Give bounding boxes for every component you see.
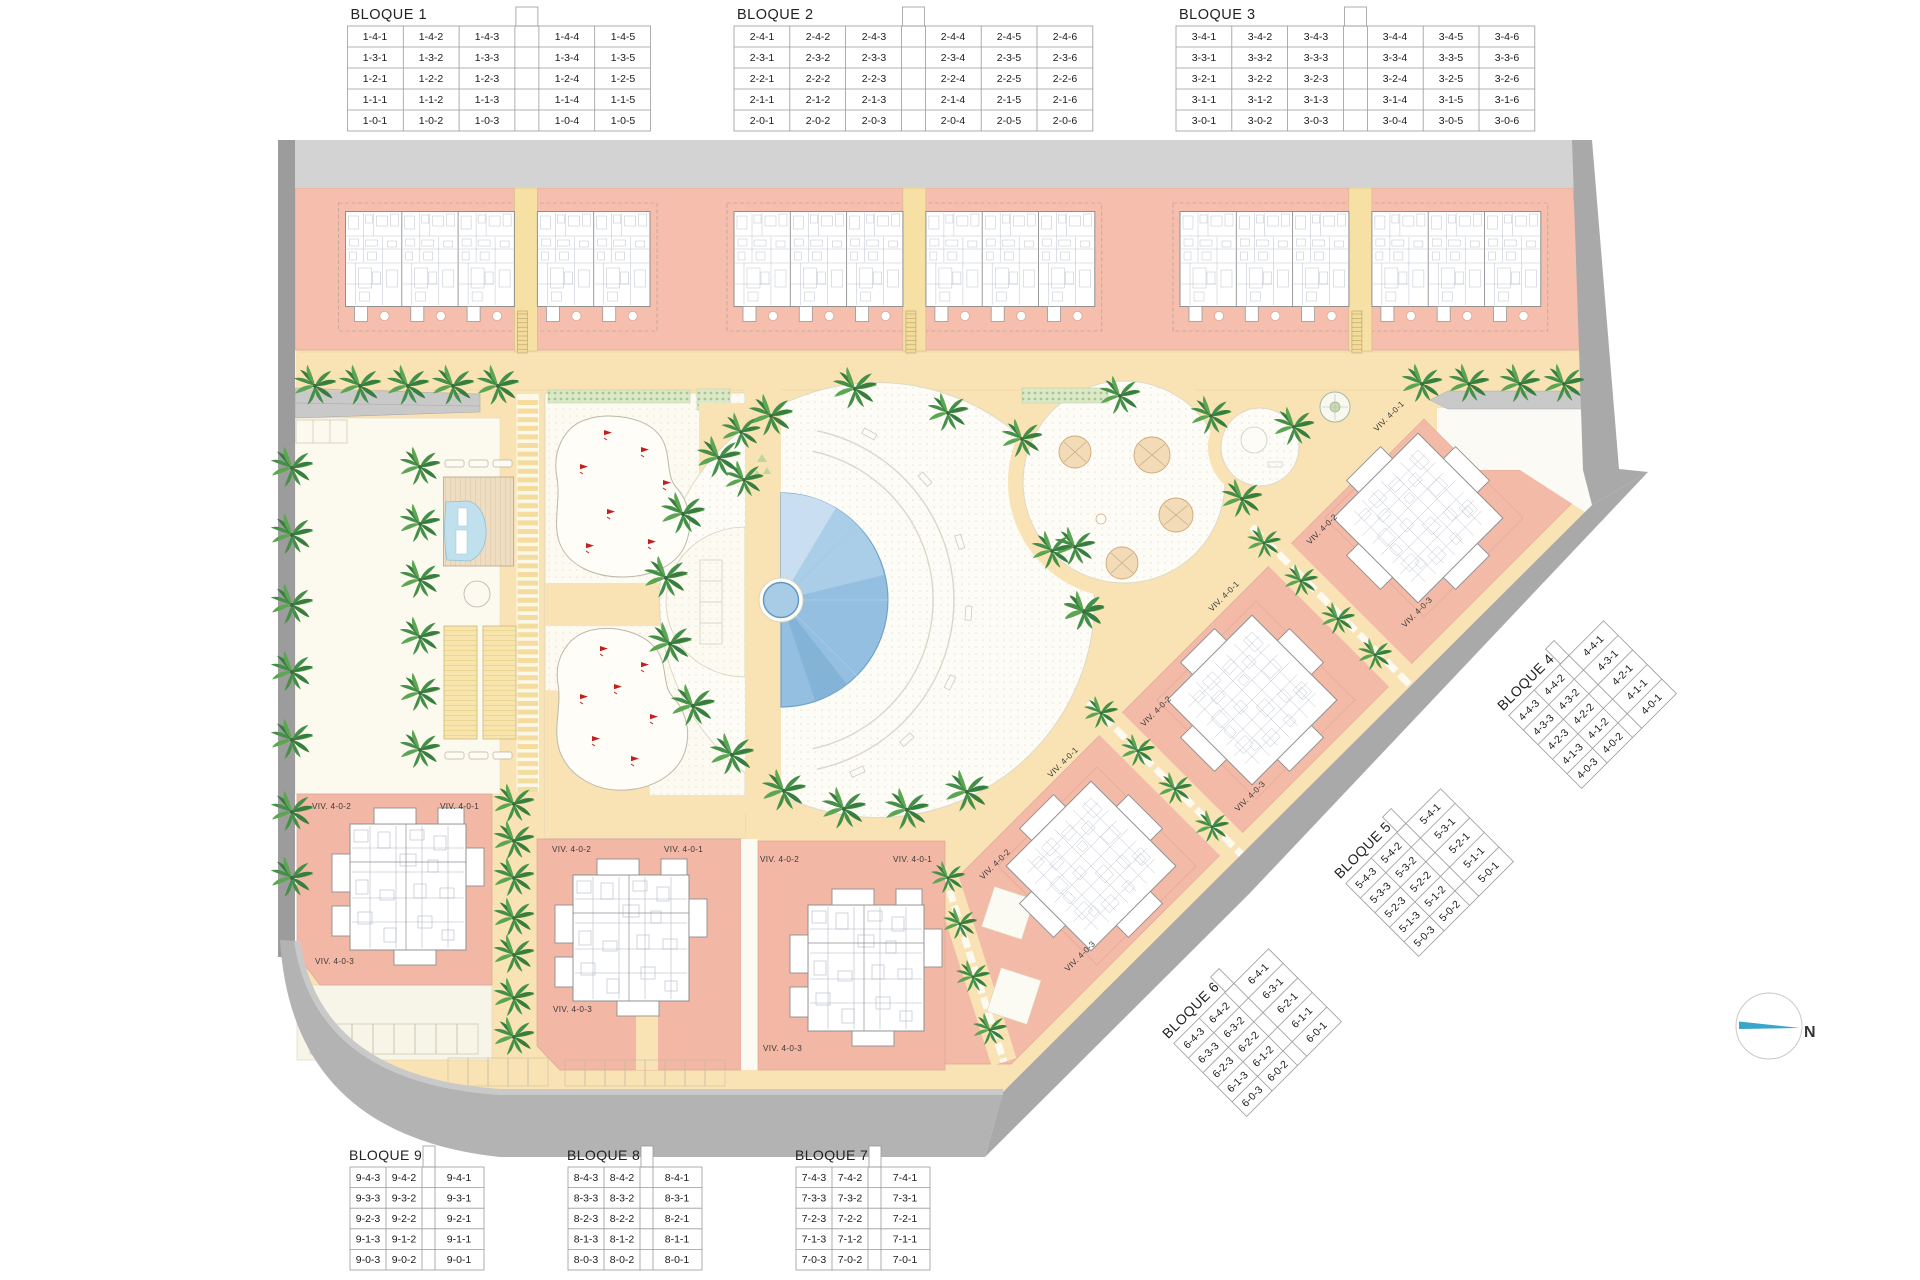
- svg-text:1-3-1: 1-3-1: [363, 52, 388, 64]
- svg-text:1-2-5: 1-2-5: [611, 73, 636, 85]
- svg-text:8-4-1: 8-4-1: [665, 1172, 690, 1184]
- svg-text:N: N: [1804, 1024, 1816, 1041]
- svg-text:9-4-2: 9-4-2: [392, 1172, 417, 1184]
- svg-text:7-4-3: 7-4-3: [802, 1172, 827, 1184]
- svg-text:VIV. 4-0-3: VIV. 4-0-3: [315, 957, 354, 966]
- svg-text:1-1-4: 1-1-4: [555, 94, 580, 106]
- svg-text:VIV. 4-0-1: VIV. 4-0-1: [440, 802, 479, 811]
- svg-text:9-1-1: 9-1-1: [447, 1234, 472, 1246]
- svg-text:3-3-1: 3-3-1: [1192, 52, 1217, 64]
- svg-text:9-3-2: 9-3-2: [392, 1192, 417, 1204]
- svg-text:VIV. 4-0-2: VIV. 4-0-2: [760, 855, 799, 864]
- svg-text:2-2-5: 2-2-5: [997, 73, 1022, 85]
- svg-text:7-0-2: 7-0-2: [838, 1254, 863, 1266]
- svg-text:3-3-3: 3-3-3: [1304, 52, 1329, 64]
- svg-text:2-1-3: 2-1-3: [862, 94, 887, 106]
- svg-text:VIV. 4-0-3: VIV. 4-0-3: [763, 1044, 802, 1053]
- svg-text:3-0-5: 3-0-5: [1439, 115, 1464, 127]
- svg-text:1-1-5: 1-1-5: [611, 94, 636, 106]
- svg-text:8-2-1: 8-2-1: [665, 1213, 690, 1225]
- svg-text:3-0-1: 3-0-1: [1192, 115, 1217, 127]
- svg-text:3-4-4: 3-4-4: [1383, 31, 1408, 43]
- svg-text:7-3-3: 7-3-3: [802, 1192, 827, 1204]
- svg-text:2-2-4: 2-2-4: [941, 73, 966, 85]
- svg-text:1-0-1: 1-0-1: [363, 115, 388, 127]
- svg-text:3-0-2: 3-0-2: [1248, 115, 1273, 127]
- svg-text:9-0-3: 9-0-3: [356, 1254, 381, 1266]
- svg-text:BLOQUE 2: BLOQUE 2: [737, 7, 814, 23]
- svg-text:1-3-2: 1-3-2: [419, 52, 444, 64]
- svg-text:8-1-1: 8-1-1: [665, 1234, 690, 1246]
- svg-text:3-2-1: 3-2-1: [1192, 73, 1217, 85]
- svg-text:1-4-1: 1-4-1: [363, 31, 388, 43]
- svg-text:1-3-4: 1-3-4: [555, 52, 580, 64]
- svg-text:1-1-3: 1-1-3: [475, 94, 500, 106]
- svg-text:8-3-1: 8-3-1: [665, 1192, 690, 1204]
- svg-text:3-1-3: 3-1-3: [1304, 94, 1329, 106]
- svg-text:3-3-6: 3-3-6: [1495, 52, 1520, 64]
- svg-text:3-3-5: 3-3-5: [1439, 52, 1464, 64]
- svg-text:BLOQUE 7: BLOQUE 7: [795, 1147, 868, 1163]
- svg-text:1-4-5: 1-4-5: [611, 31, 636, 43]
- svg-text:7-2-3: 7-2-3: [802, 1213, 827, 1225]
- svg-text:3-0-6: 3-0-6: [1495, 115, 1520, 127]
- svg-text:2-0-5: 2-0-5: [997, 115, 1022, 127]
- svg-text:2-0-1: 2-0-1: [750, 115, 775, 127]
- svg-text:VIV. 4-0-2: VIV. 4-0-2: [552, 845, 591, 854]
- svg-text:3-0-4: 3-0-4: [1383, 115, 1408, 127]
- svg-text:3-4-5: 3-4-5: [1439, 31, 1464, 43]
- svg-text:2-3-1: 2-3-1: [750, 52, 775, 64]
- svg-text:1-4-4: 1-4-4: [555, 31, 580, 43]
- svg-text:9-4-1: 9-4-1: [447, 1172, 472, 1184]
- svg-text:3-1-2: 3-1-2: [1248, 94, 1273, 106]
- svg-text:1-0-2: 1-0-2: [419, 115, 444, 127]
- svg-text:1-2-3: 1-2-3: [475, 73, 500, 85]
- svg-text:VIV. 4-0-1: VIV. 4-0-1: [664, 845, 703, 854]
- svg-text:8-1-3: 8-1-3: [574, 1234, 599, 1246]
- svg-text:BLOQUE 3: BLOQUE 3: [1179, 7, 1256, 23]
- svg-text:8-1-2: 8-1-2: [610, 1234, 635, 1246]
- svg-text:7-2-2: 7-2-2: [838, 1213, 863, 1225]
- svg-text:1-3-5: 1-3-5: [611, 52, 636, 64]
- svg-text:3-4-3: 3-4-3: [1304, 31, 1329, 43]
- svg-text:1-2-1: 1-2-1: [363, 73, 388, 85]
- svg-text:9-3-1: 9-3-1: [447, 1192, 472, 1204]
- svg-text:8-0-3: 8-0-3: [574, 1254, 599, 1266]
- svg-text:VIV. 4-0-2: VIV. 4-0-2: [312, 802, 351, 811]
- svg-text:1-1-1: 1-1-1: [363, 94, 388, 106]
- svg-text:3-2-6: 3-2-6: [1495, 73, 1520, 85]
- svg-text:3-0-3: 3-0-3: [1304, 115, 1329, 127]
- svg-text:2-3-3: 2-3-3: [862, 52, 887, 64]
- svg-text:7-1-1: 7-1-1: [893, 1234, 918, 1246]
- svg-text:2-3-5: 2-3-5: [997, 52, 1022, 64]
- svg-text:7-4-1: 7-4-1: [893, 1172, 918, 1184]
- svg-text:VIV. 4-0-3: VIV. 4-0-3: [553, 1005, 592, 1014]
- svg-text:8-3-2: 8-3-2: [610, 1192, 635, 1204]
- svg-text:3-1-4: 3-1-4: [1383, 94, 1408, 106]
- svg-text:1-0-4: 1-0-4: [555, 115, 580, 127]
- svg-text:1-2-4: 1-2-4: [555, 73, 580, 85]
- svg-text:BLOQUE 1: BLOQUE 1: [351, 7, 428, 23]
- svg-text:9-4-3: 9-4-3: [356, 1172, 381, 1184]
- svg-text:1-0-3: 1-0-3: [475, 115, 500, 127]
- svg-text:3-2-4: 3-2-4: [1383, 73, 1408, 85]
- svg-text:BLOQUE 8: BLOQUE 8: [567, 1147, 640, 1163]
- svg-text:3-3-4: 3-3-4: [1383, 52, 1408, 64]
- svg-text:2-2-2: 2-2-2: [806, 73, 831, 85]
- svg-text:3-1-6: 3-1-6: [1495, 94, 1520, 106]
- svg-text:7-1-3: 7-1-3: [802, 1234, 827, 1246]
- svg-text:2-4-4: 2-4-4: [941, 31, 966, 43]
- svg-text:2-0-3: 2-0-3: [862, 115, 887, 127]
- svg-text:1-1-2: 1-1-2: [419, 94, 444, 106]
- svg-text:9-2-1: 9-2-1: [447, 1213, 472, 1225]
- svg-text:2-4-5: 2-4-5: [997, 31, 1022, 43]
- svg-text:2-2-1: 2-2-1: [750, 73, 775, 85]
- svg-text:9-1-2: 9-1-2: [392, 1234, 417, 1246]
- svg-text:2-3-2: 2-3-2: [806, 52, 831, 64]
- svg-text:1-2-2: 1-2-2: [419, 73, 444, 85]
- svg-text:3-2-3: 3-2-3: [1304, 73, 1329, 85]
- svg-text:8-2-3: 8-2-3: [574, 1213, 599, 1225]
- svg-text:9-0-1: 9-0-1: [447, 1254, 472, 1266]
- svg-text:3-1-1: 3-1-1: [1192, 94, 1217, 106]
- svg-text:2-1-2: 2-1-2: [806, 94, 831, 106]
- svg-text:3-3-2: 3-3-2: [1248, 52, 1273, 64]
- svg-text:9-1-3: 9-1-3: [356, 1234, 381, 1246]
- svg-text:3-4-6: 3-4-6: [1495, 31, 1520, 43]
- svg-text:2-0-2: 2-0-2: [806, 115, 831, 127]
- svg-text:3-4-1: 3-4-1: [1192, 31, 1217, 43]
- svg-text:2-4-3: 2-4-3: [862, 31, 887, 43]
- svg-text:9-2-3: 9-2-3: [356, 1213, 381, 1225]
- svg-text:3-4-2: 3-4-2: [1248, 31, 1273, 43]
- svg-text:3-1-5: 3-1-5: [1439, 94, 1464, 106]
- svg-text:7-3-2: 7-3-2: [838, 1192, 863, 1204]
- svg-text:8-2-2: 8-2-2: [610, 1213, 635, 1225]
- svg-text:2-2-6: 2-2-6: [1053, 73, 1078, 85]
- svg-text:7-3-1: 7-3-1: [893, 1192, 918, 1204]
- svg-text:2-1-4: 2-1-4: [941, 94, 966, 106]
- svg-text:2-4-2: 2-4-2: [806, 31, 831, 43]
- svg-text:7-1-2: 7-1-2: [838, 1234, 863, 1246]
- svg-text:1-4-3: 1-4-3: [475, 31, 500, 43]
- svg-text:7-2-1: 7-2-1: [893, 1213, 918, 1225]
- svg-text:8-4-2: 8-4-2: [610, 1172, 635, 1184]
- svg-text:7-4-2: 7-4-2: [838, 1172, 863, 1184]
- svg-text:2-4-1: 2-4-1: [750, 31, 775, 43]
- svg-text:2-1-5: 2-1-5: [997, 94, 1022, 106]
- svg-text:8-0-2: 8-0-2: [610, 1254, 635, 1266]
- svg-text:1-4-2: 1-4-2: [419, 31, 444, 43]
- svg-text:8-0-1: 8-0-1: [665, 1254, 690, 1266]
- svg-text:VIV. 4-0-1: VIV. 4-0-1: [893, 855, 932, 864]
- svg-text:BLOQUE 9: BLOQUE 9: [349, 1147, 422, 1163]
- svg-text:1-3-3: 1-3-3: [475, 52, 500, 64]
- svg-text:2-4-6: 2-4-6: [1053, 31, 1078, 43]
- svg-text:8-3-3: 8-3-3: [574, 1192, 599, 1204]
- svg-text:7-0-1: 7-0-1: [893, 1254, 918, 1266]
- svg-text:3-2-2: 3-2-2: [1248, 73, 1273, 85]
- svg-text:9-3-3: 9-3-3: [356, 1192, 381, 1204]
- svg-text:2-0-6: 2-0-6: [1053, 115, 1078, 127]
- svg-text:2-1-6: 2-1-6: [1053, 94, 1078, 106]
- svg-text:8-4-3: 8-4-3: [574, 1172, 599, 1184]
- svg-text:9-0-2: 9-0-2: [392, 1254, 417, 1266]
- svg-text:2-2-3: 2-2-3: [862, 73, 887, 85]
- svg-text:2-0-4: 2-0-4: [941, 115, 966, 127]
- svg-text:7-0-3: 7-0-3: [802, 1254, 827, 1266]
- svg-text:2-3-6: 2-3-6: [1053, 52, 1078, 64]
- svg-text:9-2-2: 9-2-2: [392, 1213, 417, 1225]
- svg-text:2-1-1: 2-1-1: [750, 94, 775, 106]
- svg-text:1-0-5: 1-0-5: [611, 115, 636, 127]
- svg-text:2-3-4: 2-3-4: [941, 52, 966, 64]
- svg-text:3-2-5: 3-2-5: [1439, 73, 1464, 85]
